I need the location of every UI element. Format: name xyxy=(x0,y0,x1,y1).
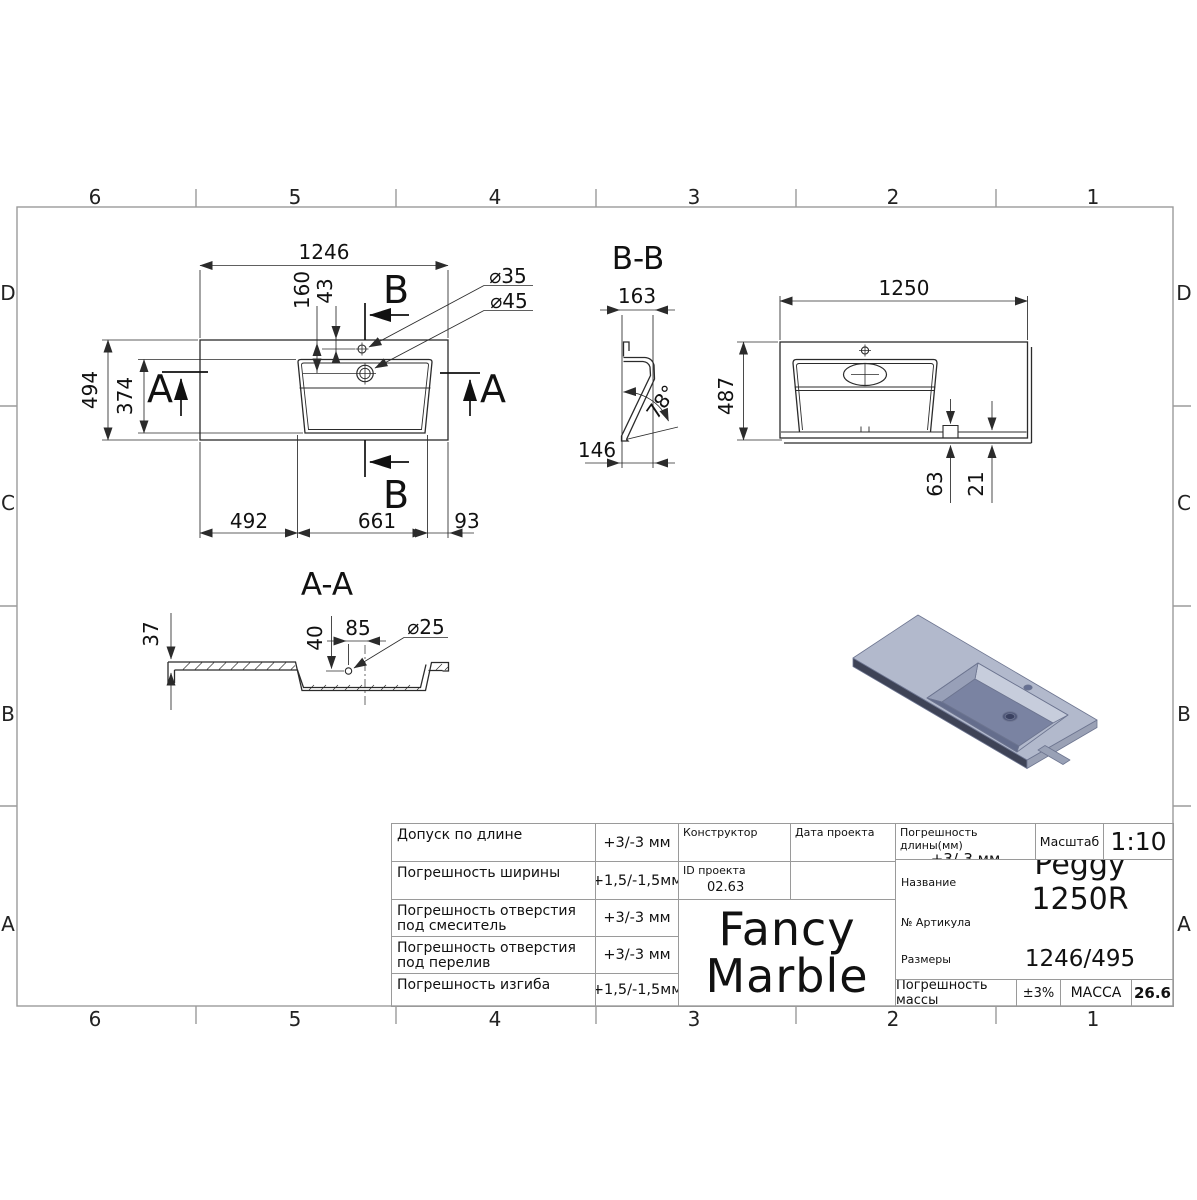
section-bb-view: B-B 163 146 78° xyxy=(578,241,681,468)
tolerance-width-value: +1,5/-1,5мм xyxy=(596,862,679,900)
project-date-label: Дата проекта xyxy=(791,824,895,841)
tolerance-width-label: Погрешность ширины xyxy=(392,862,596,900)
tolerance-faucet-hole-value: +3/-3 мм xyxy=(596,900,679,937)
tolerance-faucet-hole-label: Погрешность отверстия под смеситель xyxy=(392,900,596,937)
dimensions-value: 1246/495 xyxy=(987,946,1173,972)
dim-left-segment: 492 xyxy=(230,509,268,533)
tolerance-overflow-hole-value: +3/-3 мм xyxy=(596,937,679,974)
project-date-value-cell xyxy=(791,862,896,900)
front-view: 1250 487 63 21 xyxy=(714,276,1032,503)
scale-value: 1:10 xyxy=(1104,824,1174,860)
grid-col-label: 6 xyxy=(89,1007,102,1031)
section-aa-view: A-A 37 40 85 ⌀25 xyxy=(139,567,449,710)
tolerance-bend-label: Погрешность изгиба xyxy=(392,974,596,1007)
grid-row-label: B xyxy=(1177,702,1191,726)
faucet-hole-diameter: ⌀35 xyxy=(489,264,527,288)
dim-front-height: 487 xyxy=(714,377,738,415)
grid-row-label: A xyxy=(1177,912,1191,936)
iso-drain-hole-inner xyxy=(1005,714,1015,720)
dim-overflow-offset: 160 xyxy=(290,271,314,309)
mass-tolerance-label: Погрешность массы xyxy=(896,980,1017,1007)
project-id-label: ID проекта xyxy=(679,862,790,879)
grid-row-label: C xyxy=(1,491,15,515)
dimensions-label: Размеры xyxy=(896,953,987,966)
grid-col-label: 3 xyxy=(688,1007,701,1031)
section-aa-title: A-A xyxy=(301,567,353,603)
section-cut-marks xyxy=(162,303,480,477)
tolerance-bend-value: +1,5/-1,5мм xyxy=(596,974,679,1007)
grid-col-label: 5 xyxy=(289,1007,302,1031)
grid-col-label: 1 xyxy=(1087,185,1100,209)
dim-thickness: 37 xyxy=(139,621,163,646)
section-bb-title: B-B xyxy=(612,241,665,277)
grid-row-label: D xyxy=(1176,281,1191,305)
section-a-letter: A xyxy=(147,367,173,411)
overflow-hole-diameter: ⌀45 xyxy=(490,289,528,313)
product-info-cell: Название Peggy 1250R № Артикула Размеры … xyxy=(896,860,1174,980)
grid-col-label: 3 xyxy=(688,185,701,209)
grid-row-label: A xyxy=(1,912,15,936)
grid-row-label: C xyxy=(1177,491,1191,515)
aa-hatching xyxy=(183,663,448,691)
tolerance-length-label: Допуск по длине xyxy=(392,824,596,862)
iso-faucet-hole xyxy=(1024,685,1032,690)
dim-notch: 63 xyxy=(923,471,947,496)
bb-profile xyxy=(622,342,655,441)
brand-logo: Fancy Marble xyxy=(679,900,896,1007)
dim-hole-depth: 40 xyxy=(303,625,327,650)
dim-bb-top: 163 xyxy=(618,284,656,308)
project-id-value: 02.63 xyxy=(707,880,790,895)
project-id-cell: ID проекта 02.63 xyxy=(679,862,791,900)
grid-col-label: 5 xyxy=(289,185,302,209)
grid-col-label: 6 xyxy=(89,185,102,209)
section-b-letter: B xyxy=(383,268,409,312)
dim-right-segment: 93 xyxy=(454,509,479,533)
title-block: Допуск по длине +3/-3 мм Погрешность шир… xyxy=(391,823,1174,1007)
tolerance-overflow-hole-label: Погрешность отверстия под перелив xyxy=(392,937,596,974)
mass-value: 26.6 xyxy=(1132,980,1174,1007)
overflow-diameter-aa: ⌀25 xyxy=(407,615,445,639)
constructor-label: Конструктор xyxy=(679,824,790,841)
brand-logo-line1: Fancy xyxy=(718,906,855,953)
product-name-label: Название xyxy=(896,876,987,889)
constructor-cell: Конструктор xyxy=(679,824,791,862)
dim-wall: 21 xyxy=(964,471,988,496)
article-number-label: № Артикула xyxy=(896,916,987,929)
dim-bb-angle: 78° xyxy=(641,381,681,424)
dim-hole-offset: 85 xyxy=(345,616,370,640)
dim-width-top: 1246 xyxy=(299,240,350,264)
section-b-letter: B xyxy=(383,473,409,517)
tolerance-length-value: +3/-3 мм xyxy=(596,824,679,862)
isometric-view xyxy=(853,615,1097,769)
technical-drawing-canvas: 6 5 4 3 2 1 6 5 4 3 2 1 D C B A D C B A xyxy=(0,0,1197,1200)
grid-col-label: 2 xyxy=(887,1007,900,1031)
grid-col-label: 1 xyxy=(1087,1007,1100,1031)
scale-label: Масштаб xyxy=(1036,824,1104,860)
length-tolerance-value: +3/-3 мм xyxy=(896,850,1035,860)
dim-front-width: 1250 xyxy=(879,276,930,300)
mass-label: МАССА xyxy=(1061,980,1132,1007)
length-tolerance-cell: Погрешность длины(мм) +3/-3 мм xyxy=(896,824,1036,860)
grid-row-label: D xyxy=(0,281,15,305)
brand-logo-line2: Marble xyxy=(705,953,868,1000)
section-a-letter: A xyxy=(480,367,506,411)
dim-bb-bottom: 146 xyxy=(578,438,616,462)
grid-col-label: 4 xyxy=(489,185,502,209)
top-view: 1246 160 43 ⌀35 ⌀45 494 374 492 661 93 B… xyxy=(78,240,533,538)
grid-col-label: 2 xyxy=(887,185,900,209)
grid-row-label: B xyxy=(1,702,15,726)
dim-basin-depth: 374 xyxy=(113,377,137,415)
mass-tolerance-value: ±3% xyxy=(1017,980,1061,1007)
dim-faucet-offset: 43 xyxy=(313,278,337,303)
dim-depth: 494 xyxy=(78,371,102,409)
drawing-sheet: 6 5 4 3 2 1 6 5 4 3 2 1 D C B A D C B A xyxy=(0,0,1197,1200)
project-date-cell: Дата проекта xyxy=(791,824,896,862)
grid-col-label: 4 xyxy=(489,1007,502,1031)
